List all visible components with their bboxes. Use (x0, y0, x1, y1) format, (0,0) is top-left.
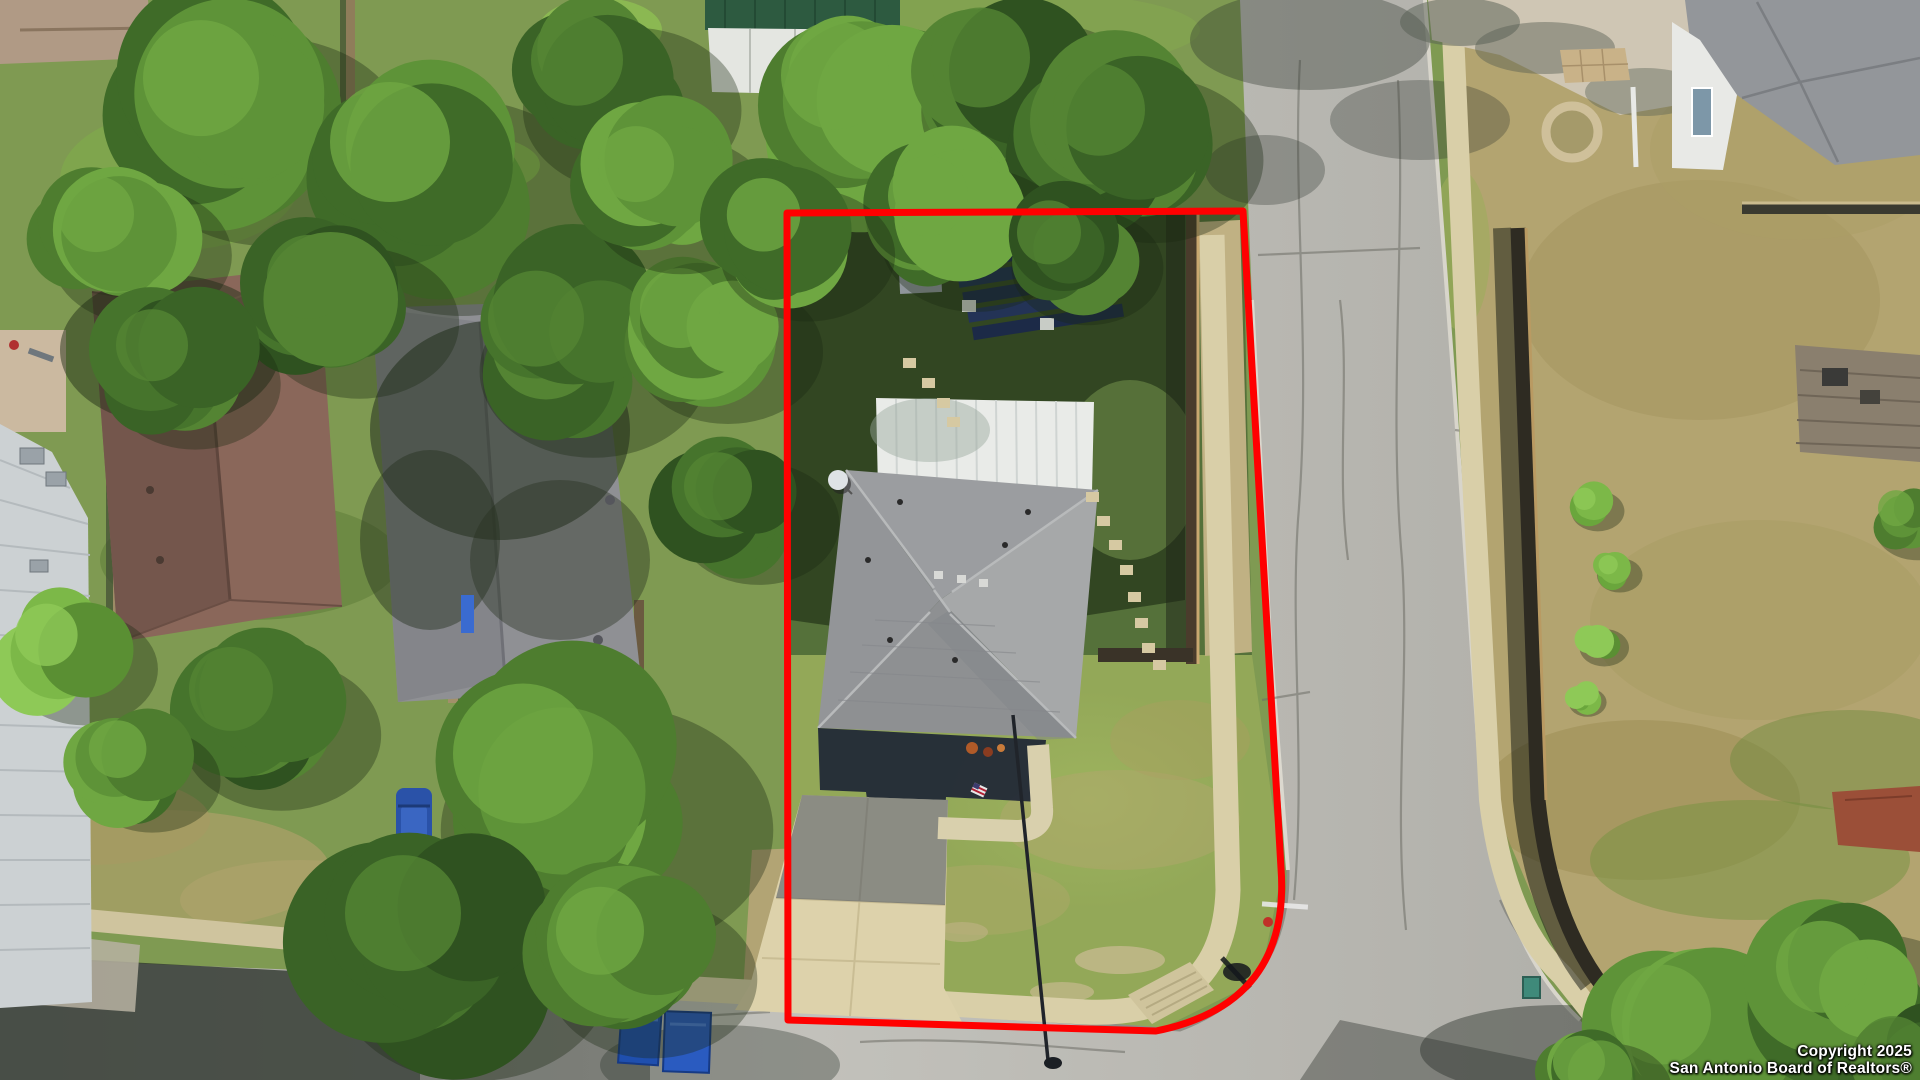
garage-tree-shadow (870, 398, 990, 462)
recycle-bin (461, 595, 474, 633)
tree-dapple-3 (360, 450, 500, 630)
ac-unit-3 (30, 560, 48, 572)
driveway-shadow (776, 795, 948, 905)
topright-window (1692, 88, 1712, 136)
downspout (1633, 87, 1636, 167)
flower-pot (966, 742, 978, 754)
subject-house-roof (818, 470, 1098, 740)
backyard-item-2 (1040, 318, 1054, 330)
fence-subject-east-shadow (1166, 214, 1186, 662)
grass-patch (1590, 520, 1920, 720)
copyright-watermark: Copyright 2025 San Antonio Board of Real… (1670, 1043, 1912, 1077)
ac-unit-2 (46, 472, 66, 486)
pad-item (9, 340, 19, 350)
flower-pot-3 (997, 744, 1005, 752)
copyright-line1: Copyright 2025 (1670, 1043, 1912, 1060)
utility-box (1523, 977, 1540, 998)
flower-pot-2 (983, 747, 993, 757)
copyright-line2: San Antonio Board of Realtors® (1670, 1060, 1912, 1077)
ac-unit (20, 448, 44, 464)
grass-patch (1075, 946, 1165, 974)
aerial-photo: Copyright 2025 San Antonio Board of Real… (0, 0, 1920, 1080)
fire-hydrant (1263, 917, 1273, 927)
